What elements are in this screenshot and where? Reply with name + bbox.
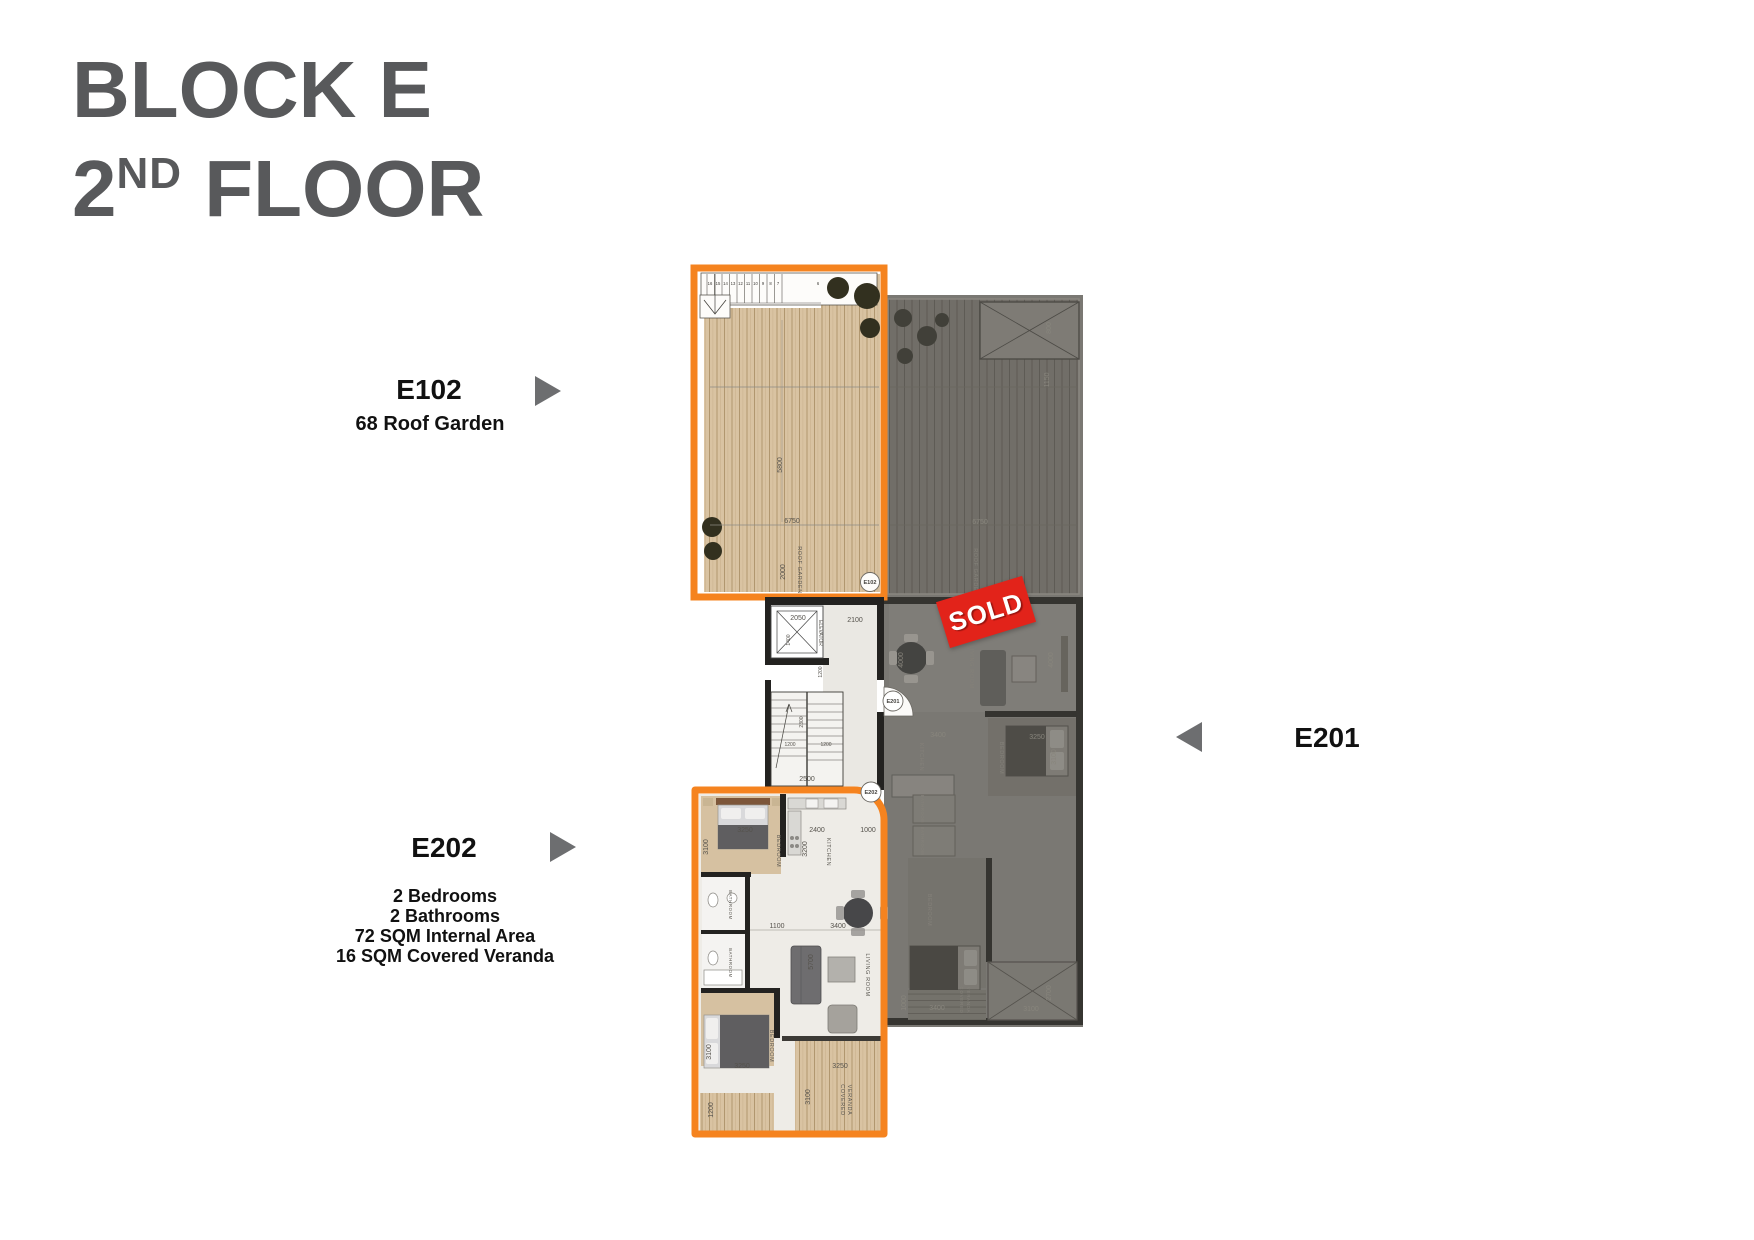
core-wall-top — [765, 597, 884, 605]
svg-text:E201: E201 — [886, 699, 899, 705]
svg-text:1200: 1200 — [818, 666, 824, 677]
svg-text:3250: 3250 — [832, 1063, 848, 1070]
svg-text:2400: 2400 — [809, 827, 825, 834]
e202-arrow-icon[interactable] — [550, 832, 576, 862]
page-title-line2: 2ND FLOOR — [72, 132, 484, 231]
svg-text:5800: 5800 — [777, 457, 784, 473]
svg-text:3100: 3100 — [706, 1044, 713, 1060]
floorplan-page: BLOCK E 2ND FLOOR E102 68 Roof Garden E2… — [0, 0, 1754, 1240]
svg-text:3250: 3250 — [737, 827, 753, 834]
floor-plan-svg: 800 1150 6750 ROOF GARDEN — [680, 260, 1090, 1145]
svg-text:KITCHEN: KITCHEN — [825, 838, 831, 866]
svg-text:3100: 3100 — [703, 839, 710, 855]
svg-text:BATHROOM: BATHROOM — [728, 948, 733, 978]
svg-text:BATHROOM: BATHROOM — [728, 890, 733, 920]
svg-text:16: 16 — [708, 281, 713, 286]
svg-text:ROOF GARDEN: ROOF GARDEN — [796, 546, 802, 594]
unit-label-e102[interactable]: E102 — [329, 374, 529, 406]
svg-text:3200: 3200 — [802, 841, 809, 857]
feature-bedrooms: 2 Bedrooms — [290, 886, 600, 906]
page-title: BLOCK E 2ND FLOOR — [72, 48, 484, 231]
svg-text:12: 12 — [738, 281, 743, 286]
svg-text:13: 13 — [731, 281, 736, 286]
svg-text:E102: E102 — [863, 580, 876, 586]
core-wall-right-b — [877, 712, 884, 790]
unit-label-e202[interactable]: E202 — [344, 832, 544, 864]
svg-text:3400: 3400 — [830, 923, 846, 930]
stairwell — [765, 680, 843, 790]
svg-text:2050: 2050 — [790, 615, 806, 622]
core-wall-elev — [765, 658, 829, 665]
svg-text:1100: 1100 — [769, 923, 784, 930]
svg-text:15: 15 — [716, 281, 721, 286]
svg-text:2500: 2500 — [799, 776, 815, 783]
svg-text:10: 10 — [753, 281, 758, 286]
svg-text:6750: 6750 — [784, 518, 800, 525]
svg-text:2000: 2000 — [780, 564, 787, 580]
svg-text:1200: 1200 — [820, 742, 831, 748]
svg-text:VERANDA: VERANDA — [846, 1085, 852, 1116]
svg-text:2100: 2100 — [847, 617, 863, 624]
svg-text:14: 14 — [723, 281, 728, 286]
feature-veranda: 16 SQM Covered Veranda — [290, 946, 600, 966]
svg-text:ELEVATOR: ELEVATOR — [817, 620, 823, 646]
unit-subtitle-e102: 68 Roof Garden — [320, 413, 540, 436]
e102-plan-tag: E102 — [861, 573, 880, 592]
svg-text:11: 11 — [746, 281, 751, 286]
svg-text:LIVING ROOM: LIVING ROOM — [864, 953, 870, 996]
e202-plan-tag: E202 — [861, 782, 881, 802]
svg-text:BEDROOM: BEDROOM — [775, 835, 781, 868]
elevator: 2050 ELEVATOR 1400 — [771, 606, 823, 658]
roof-deck — [704, 274, 880, 592]
feature-bathrooms: 2 Bathrooms — [290, 906, 600, 926]
svg-text:2300: 2300 — [799, 716, 805, 727]
e201-arrow-icon[interactable] — [1176, 722, 1202, 752]
svg-text:5700: 5700 — [808, 954, 815, 970]
roof-garden-e102: 16 15 14 13 12 11 10 9 8 7 6 — [694, 268, 884, 597]
ordinal-suffix: ND — [117, 149, 183, 198]
svg-text:E202: E202 — [864, 790, 877, 796]
unit-features-e202: 2 Bedrooms 2 Bathrooms 72 SQM Internal A… — [290, 886, 600, 966]
svg-text:BEDROOM: BEDROOM — [768, 1030, 774, 1063]
svg-text:1200: 1200 — [784, 742, 795, 748]
svg-text:1000: 1000 — [860, 827, 876, 834]
e202-bed2 — [704, 1015, 769, 1068]
core-wall-left — [765, 605, 771, 664]
unit-e201-gray: 800 1150 6750 ROOF GARDEN — [884, 295, 1083, 1027]
svg-text:1200: 1200 — [708, 1102, 715, 1118]
unit-e202: 3250 3100 BEDROOM 2400 1000 3200 KITCHEN — [695, 782, 888, 1134]
feature-internal-area: 72 SQM Internal Area — [290, 926, 600, 946]
svg-text:COVERED: COVERED — [839, 1084, 845, 1115]
svg-text:1400: 1400 — [786, 634, 792, 645]
page-title-line1: BLOCK E — [72, 48, 484, 132]
unit-label-e201[interactable]: E201 — [1227, 722, 1427, 754]
svg-text:3250: 3250 — [734, 1063, 750, 1070]
core-wall-right-a — [877, 597, 884, 680]
e102-arrow-icon[interactable] — [535, 376, 561, 406]
e201-dim-overlay — [884, 295, 1083, 1027]
svg-text:3100: 3100 — [805, 1089, 812, 1105]
e202-veranda-wall — [782, 1036, 886, 1041]
